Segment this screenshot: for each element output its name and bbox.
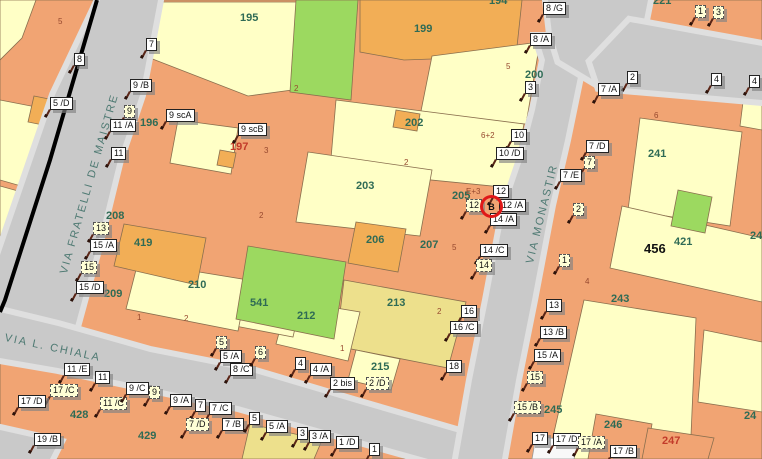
civic-label[interactable]: 8 /A: [530, 33, 552, 46]
parcel-annotation: 6+2: [481, 131, 495, 140]
parcel-number: 200: [525, 69, 543, 81]
civic-label[interactable]: 7 /B: [222, 418, 244, 431]
parcel-annotation: 5: [58, 17, 62, 26]
parcel-number: 245: [544, 404, 562, 416]
civic-label[interactable]: 17 /C: [50, 384, 78, 397]
civic-label[interactable]: 2 /D: [366, 377, 389, 390]
civic-label[interactable]: 4: [711, 73, 722, 86]
civic-label[interactable]: 15: [81, 261, 97, 274]
parcel-number: 24: [744, 410, 756, 422]
civic-label[interactable]: 7 /D: [186, 418, 209, 431]
parcel-number: 541: [250, 297, 268, 309]
civic-label[interactable]: 1: [695, 5, 706, 18]
civic-label[interactable]: 5 /A: [220, 350, 242, 363]
civic-label[interactable]: 4: [295, 357, 306, 370]
civic-label[interactable]: 9: [124, 105, 135, 118]
parcel-number: 206: [366, 234, 384, 246]
civic-label[interactable]: 3 /A: [309, 430, 331, 443]
parcel-number: 210: [188, 279, 206, 291]
civic-label[interactable]: 6: [255, 346, 266, 359]
civic-label[interactable]: 11 /A: [110, 119, 136, 132]
parcel-annotation: 2: [294, 84, 298, 93]
parcel-number: 194: [489, 0, 507, 7]
parcel-number: 199: [414, 23, 432, 35]
civic-label[interactable]: 17 /B: [610, 445, 637, 458]
cadastral-map-canvas[interactable]: VIA FRATELLI DE MAISTRE VIA L. CHIALA VI…: [0, 0, 762, 459]
civic-label[interactable]: 9 /B: [130, 79, 152, 92]
parcel-number: 208: [106, 210, 124, 222]
civic-label[interactable]: 18: [446, 360, 462, 373]
parcel-number: 195: [240, 12, 258, 24]
civic-label[interactable]: 16 /C: [450, 321, 478, 334]
civic-label[interactable]: 7: [584, 156, 595, 169]
civic-label[interactable]: 9 scA: [166, 109, 195, 122]
civic-label[interactable]: 15: [527, 371, 543, 384]
civic-label[interactable]: 1: [369, 443, 380, 456]
parcel-number: 215: [371, 361, 389, 373]
civic-label[interactable]: 7 /D: [586, 140, 609, 153]
parcel-number: 203: [356, 180, 374, 192]
civic-label[interactable]: 15 /B: [514, 401, 541, 414]
civic-label[interactable]: 2: [573, 203, 584, 216]
parcel-number: 207: [420, 239, 438, 251]
civic-label[interactable]: 9 scB: [238, 123, 267, 136]
civic-label[interactable]: 14: [476, 259, 492, 272]
civic-label[interactable]: 12 /A: [499, 199, 526, 212]
parcel-number: 419: [134, 237, 152, 249]
parcel-annotation: 6: [654, 111, 658, 120]
civic-label[interactable]: 4 /A: [310, 363, 332, 376]
civic-label[interactable]: 17: [532, 432, 548, 445]
civic-label[interactable]: 8 /G: [543, 2, 566, 15]
civic-label[interactable]: 13: [93, 222, 109, 235]
parcel-number: 243: [611, 293, 629, 305]
civic-label[interactable]: 11: [111, 147, 126, 160]
parcel-annotation: 2: [259, 211, 263, 220]
civic-label[interactable]: 15 /A: [90, 239, 117, 252]
parcel-annotation: E+3: [466, 187, 480, 196]
parcel-number: 196: [140, 117, 158, 129]
parcel-annotation: 2: [184, 314, 188, 323]
civic-label[interactable]: 13: [546, 299, 562, 312]
parcel-number: 209: [104, 288, 122, 300]
civic-label[interactable]: 4: [749, 75, 760, 88]
civic-label[interactable]: 9: [149, 386, 160, 399]
parcel-annotation: 4: [585, 277, 589, 286]
parcel-annotation: 5: [506, 62, 510, 71]
parcel-annotation: 2: [404, 158, 408, 167]
civic-label[interactable]: 7 /A: [598, 83, 620, 96]
civic-label[interactable]: 9 /C: [126, 382, 149, 395]
civic-label[interactable]: 11 /E: [64, 363, 90, 376]
civic-label[interactable]: 7: [146, 38, 157, 51]
civic-label[interactable]: 11: [95, 371, 110, 384]
civic-label[interactable]: 19 /B: [34, 433, 61, 446]
civic-label[interactable]: 7 /E: [560, 169, 582, 182]
civic-label[interactable]: 7: [195, 399, 206, 412]
civic-label[interactable]: 7 /C: [209, 402, 232, 415]
civic-label[interactable]: 3: [525, 81, 536, 94]
civic-label[interactable]: 1: [559, 254, 570, 267]
civic-label[interactable]: 5 /D: [50, 97, 73, 110]
civic-label[interactable]: 2: [627, 71, 638, 84]
civic-label[interactable]: 9 /A: [170, 394, 192, 407]
parcel-number: 246: [604, 419, 622, 431]
parcel-number: 202: [405, 117, 423, 129]
civic-label[interactable]: 5 /A: [266, 420, 288, 433]
parcel-number: 213: [387, 297, 405, 309]
parcel-number: 221: [653, 0, 671, 7]
parcel-annotation: 1: [137, 313, 141, 322]
civic-label[interactable]: 17 /D: [18, 395, 46, 408]
civic-label[interactable]: 5: [216, 336, 227, 349]
parcel-annotation: 3: [264, 146, 268, 155]
parcel-number: 429: [138, 430, 156, 442]
civic-label[interactable]: 3: [297, 427, 308, 440]
civic-label[interactable]: 5: [249, 412, 260, 425]
parcel-annotation: 2: [437, 307, 441, 316]
civic-label[interactable]: 8: [74, 53, 85, 66]
civic-label[interactable]: 15 /D: [76, 281, 104, 294]
selected-civic-letter: B: [488, 202, 495, 212]
civic-label[interactable]: 3: [713, 6, 724, 19]
civic-label[interactable]: 10: [511, 129, 527, 142]
parcel-annotation: 1: [340, 344, 344, 353]
selected-civic-marker[interactable]: B: [480, 195, 503, 218]
civic-label[interactable]: 15 /A: [534, 349, 561, 362]
parcel-annotation: 5: [452, 243, 456, 252]
parcel-number: 456: [644, 241, 666, 256]
parcel-number: 247: [662, 435, 680, 447]
parcel-number: 212: [297, 310, 315, 322]
parcel-number: 241: [648, 148, 666, 160]
parcel-number: 428: [70, 409, 88, 421]
map-base: [0, 0, 762, 459]
civic-label[interactable]: 13 /B: [540, 326, 567, 339]
parcel-number: 24: [750, 230, 762, 242]
civic-label[interactable]: 2 bis: [330, 377, 355, 390]
civic-label[interactable]: 14 /C: [480, 244, 508, 257]
civic-label[interactable]: 1 /D: [336, 436, 359, 449]
civic-label[interactable]: 10 /D: [496, 147, 524, 160]
parcel-number: 421: [674, 236, 692, 248]
civic-label[interactable]: 17 /D: [553, 433, 581, 446]
civic-label[interactable]: 16: [461, 305, 477, 318]
civic-label[interactable]: 17 /A: [578, 436, 605, 449]
